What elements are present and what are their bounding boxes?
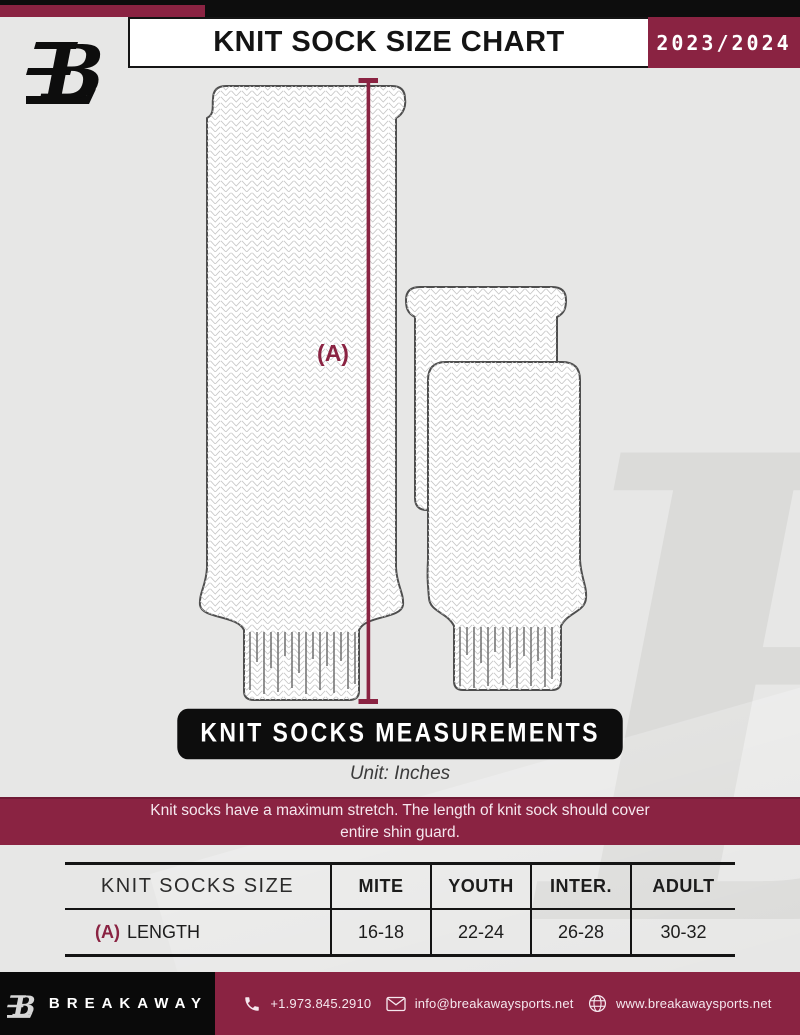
brand-wordmark: BREAKAWAY [49, 995, 208, 1012]
website-url: www.breakawaysports.net [616, 996, 772, 1011]
length-value-youth: 22-24 [430, 910, 530, 954]
email-contact: info@breakawaysports.net [386, 996, 574, 1012]
season-badge: 2023/2024 [648, 17, 800, 68]
top-bar [0, 0, 800, 17]
unit-label: Unit: Inches [0, 763, 800, 785]
sock-diagram [180, 70, 620, 715]
column-header-inter: INTER. [530, 865, 630, 908]
website-contact: www.breakawaysports.net [588, 994, 772, 1013]
measurement-a-label: (A) [305, 340, 361, 367]
notice-line-1: Knit socks have a maximum stretch. The l… [150, 800, 649, 822]
logo-letter: B [40, 30, 105, 110]
length-value-adult: 30-32 [630, 910, 735, 954]
phone-contact: +1.973.845.2910 [243, 995, 371, 1013]
footer: B BREAKAWAY +1.973.845.2910 info@breakaw… [0, 972, 800, 1035]
notice-line-2: entire shin guard. [340, 822, 460, 844]
footer-contacts: +1.973.845.2910 info@breakawaysports.net… [215, 972, 800, 1035]
length-label: LENGTH [127, 922, 200, 943]
footer-brand-block: B BREAKAWAY [0, 972, 215, 1035]
breakaway-footer-logo: B [7, 987, 37, 1021]
size-table-header-row: KNIT SOCKS SIZE MITE YOUTH INTER. ADULT [65, 865, 735, 910]
column-header-size: KNIT SOCKS SIZE [65, 865, 330, 908]
footer-logo-letter: B [12, 991, 36, 1020]
column-header-mite: MITE [330, 865, 430, 908]
length-value-mite: 16-18 [330, 910, 430, 954]
phone-number: +1.973.845.2910 [270, 996, 371, 1011]
column-header-adult: ADULT [630, 865, 735, 908]
email-address: info@breakawaysports.net [415, 996, 574, 1011]
globe-icon [588, 994, 607, 1013]
column-header-youth: YOUTH [430, 865, 530, 908]
page-title-box: KNIT SOCK SIZE CHART [128, 17, 648, 68]
page-title: KNIT SOCK SIZE CHART [213, 26, 565, 59]
measurements-banner-label: KNIT SOCKS MEASUREMENTS [177, 709, 623, 760]
row-label-length: (A) LENGTH [65, 910, 330, 954]
knit-sock-size-chart-page: B B KNIT SOCK SIZE CHART 2023/2024 [0, 0, 800, 1035]
measurements-banner: KNIT SOCKS MEASUREMENTS [0, 711, 800, 757]
email-icon [386, 996, 406, 1012]
size-table: KNIT SOCKS SIZE MITE YOUTH INTER. ADULT … [65, 862, 735, 957]
phone-icon [243, 995, 261, 1013]
sock-large [200, 86, 405, 700]
season-label: 2023/2024 [656, 31, 791, 55]
length-value-inter: 26-28 [530, 910, 630, 954]
measurement-a-ref: (A) [95, 922, 120, 943]
size-table-length-row: (A) LENGTH 16-18 22-24 26-28 30-32 [65, 910, 735, 954]
top-bar-accent-stripe [0, 5, 205, 17]
sock-small [428, 362, 587, 690]
notice-banner: Knit socks have a maximum stretch. The l… [0, 797, 800, 845]
breakaway-logo: B [26, 22, 108, 110]
